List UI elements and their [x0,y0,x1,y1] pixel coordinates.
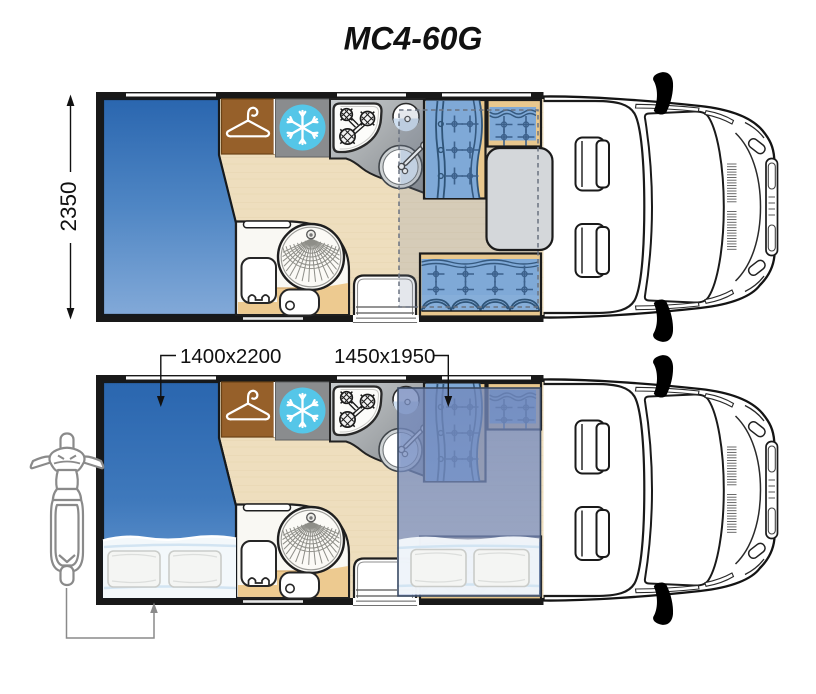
svg-text:1450x1950: 1450x1950 [334,345,435,368]
svg-text:1400x2200: 1400x2200 [180,345,281,368]
svg-text:2350: 2350 [56,181,81,231]
svg-text:MC4-60G: MC4-60G [344,21,483,57]
